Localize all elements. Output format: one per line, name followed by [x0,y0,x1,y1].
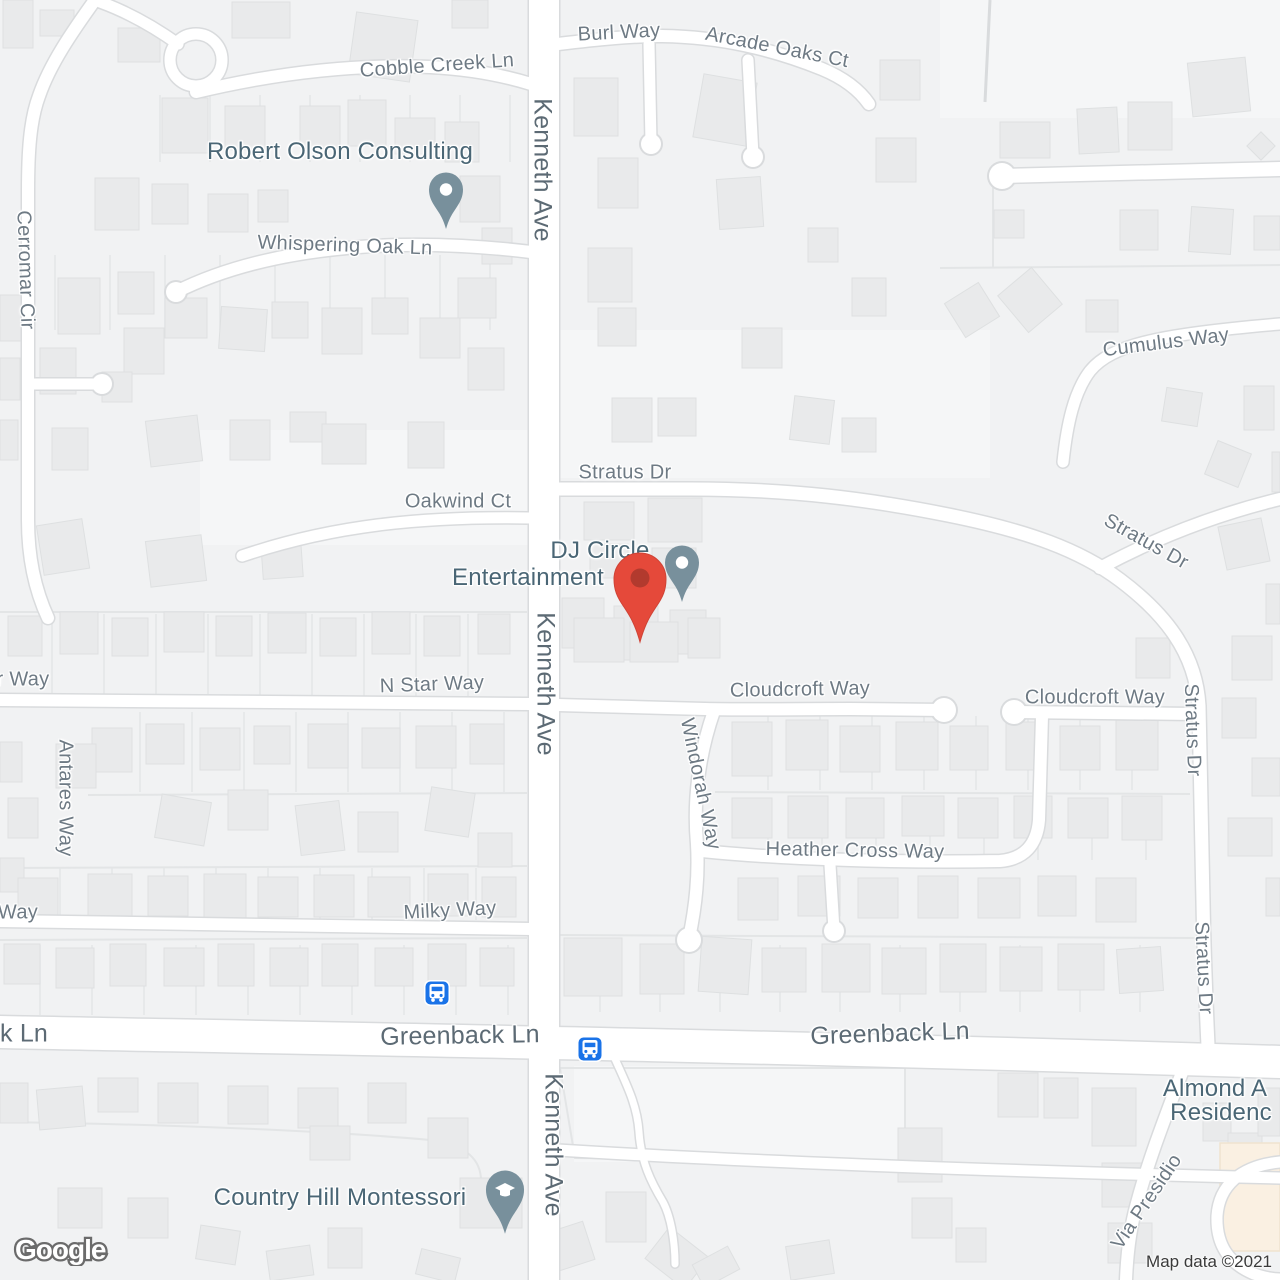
map-canvas[interactable]: Burl WayArcade Oaks CtCobble Creek LnKen… [0,0,1280,1280]
bus-stop-icon[interactable] [579,1038,602,1061]
bus-icon [426,982,449,1005]
pin-dot-icon [440,183,452,195]
google-logo-text: Google [15,1234,106,1265]
google-logo[interactable]: Google [13,1232,133,1266]
map-attribution: Map data ©2021 [1146,1252,1272,1272]
marker-inner-dot [631,569,650,588]
pin-dot-icon [676,556,688,568]
bus-icon [579,1038,602,1061]
bus-stop-icon[interactable] [426,982,449,1005]
